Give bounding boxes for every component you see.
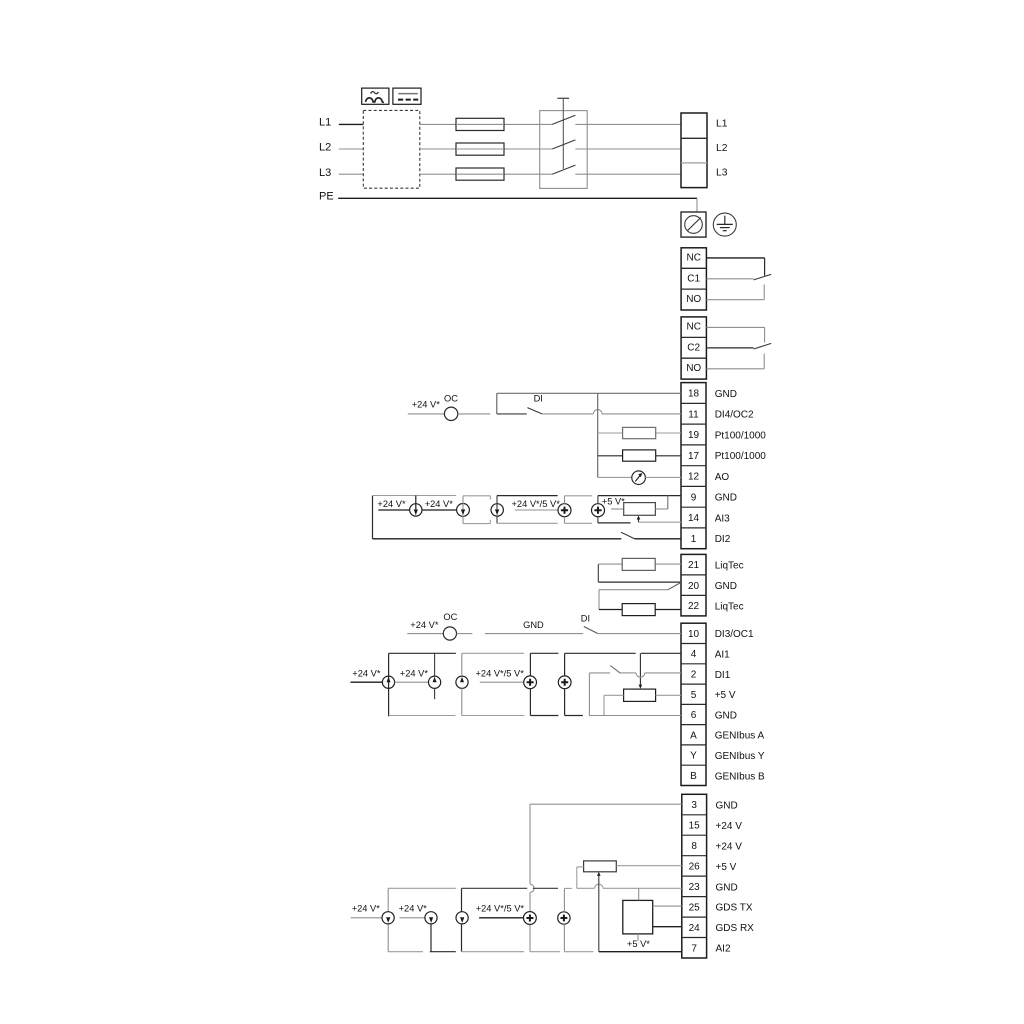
svg-text:+24 V*: +24 V* xyxy=(410,620,439,630)
svg-text:GND: GND xyxy=(715,389,737,400)
svg-text:Pt100/1000: Pt100/1000 xyxy=(715,430,767,441)
svg-text:+24 V: +24 V xyxy=(716,821,743,832)
svg-text:+5 V: +5 V xyxy=(716,862,737,873)
svg-text:23: 23 xyxy=(689,882,701,893)
svg-text:GND: GND xyxy=(715,493,737,504)
svg-text:GENIbus A: GENIbus A xyxy=(715,731,765,742)
svg-text:+24 V*: +24 V* xyxy=(352,904,381,914)
svg-text:17: 17 xyxy=(688,451,700,462)
svg-text:GND: GND xyxy=(523,620,544,630)
svg-text:18: 18 xyxy=(688,389,700,400)
svg-text:+24 V*: +24 V* xyxy=(399,904,428,914)
svg-text:DI: DI xyxy=(534,394,543,404)
svg-text:GENIbus B: GENIbus B xyxy=(715,771,765,782)
svg-text:L3: L3 xyxy=(716,168,728,179)
svg-text:LiqTec: LiqTec xyxy=(715,602,744,613)
svg-text:21: 21 xyxy=(688,560,700,571)
svg-text:24: 24 xyxy=(689,923,701,934)
svg-text:+24 V: +24 V xyxy=(716,841,743,852)
svg-text:+24 V*/5 V*: +24 V*/5 V* xyxy=(476,904,525,914)
svg-text:+24 V*: +24 V* xyxy=(425,499,454,509)
svg-text:15: 15 xyxy=(689,821,701,832)
svg-text:GDS TX: GDS TX xyxy=(716,903,753,914)
svg-text:10: 10 xyxy=(688,629,700,640)
svg-text:+24 V*/5 V*: +24 V*/5 V* xyxy=(512,499,561,509)
svg-text:L3: L3 xyxy=(319,167,331,179)
svg-text:DI1: DI1 xyxy=(715,670,731,681)
svg-text:+5 V: +5 V xyxy=(715,690,736,701)
svg-text:22: 22 xyxy=(688,601,700,612)
svg-text:14: 14 xyxy=(688,513,700,524)
svg-text:+24 V*: +24 V* xyxy=(352,668,381,678)
svg-text:DI3/OC1: DI3/OC1 xyxy=(715,629,754,640)
svg-text:12: 12 xyxy=(688,472,700,483)
svg-text:+5 V*: +5 V* xyxy=(627,939,650,949)
svg-text:1: 1 xyxy=(691,534,697,545)
svg-text:4: 4 xyxy=(691,649,697,660)
svg-text:AI3: AI3 xyxy=(715,514,730,525)
svg-text:A: A xyxy=(690,730,697,741)
svg-text:AI2: AI2 xyxy=(716,944,731,955)
svg-text:PE: PE xyxy=(319,191,334,203)
svg-text:B: B xyxy=(690,771,697,782)
svg-text:20: 20 xyxy=(688,581,700,592)
svg-text:25: 25 xyxy=(689,902,701,913)
svg-text:NC: NC xyxy=(686,253,700,264)
svg-text:GENIbus Y: GENIbus Y xyxy=(715,751,765,762)
svg-text:2: 2 xyxy=(691,670,697,681)
svg-text:GND: GND xyxy=(716,800,738,811)
svg-text:+24 V*: +24 V* xyxy=(377,499,406,509)
svg-text:+24 V*/5 V*: +24 V*/5 V* xyxy=(476,668,525,678)
svg-text:L2: L2 xyxy=(319,142,331,154)
svg-text:3: 3 xyxy=(691,800,697,811)
svg-text:AI1: AI1 xyxy=(715,650,730,661)
svg-text:L2: L2 xyxy=(716,143,728,154)
svg-text:AO: AO xyxy=(715,472,730,483)
svg-text:DI4/OC2: DI4/OC2 xyxy=(715,410,754,421)
svg-text:DI: DI xyxy=(581,614,590,624)
svg-text:9: 9 xyxy=(691,492,697,503)
svg-text:C1: C1 xyxy=(687,273,700,284)
svg-text:11: 11 xyxy=(688,409,699,420)
svg-text:+5 V*: +5 V* xyxy=(602,497,625,507)
svg-text:19: 19 xyxy=(688,430,700,441)
svg-text:6: 6 xyxy=(691,710,697,721)
svg-text:+24 V*: +24 V* xyxy=(412,400,441,410)
svg-text:+24 V*: +24 V* xyxy=(400,668,429,678)
svg-text:L1: L1 xyxy=(319,116,331,128)
svg-text:Y: Y xyxy=(690,751,697,762)
svg-text:OC: OC xyxy=(444,394,458,404)
svg-text:L1: L1 xyxy=(716,119,728,130)
svg-text:GND: GND xyxy=(716,882,738,893)
svg-text:7: 7 xyxy=(691,943,697,954)
svg-text:8: 8 xyxy=(691,841,697,852)
svg-text:GND: GND xyxy=(715,710,737,721)
svg-text:NO: NO xyxy=(686,363,701,374)
svg-text:GND: GND xyxy=(715,581,737,592)
svg-text:C2: C2 xyxy=(687,342,700,353)
svg-text:Pt100/1000: Pt100/1000 xyxy=(715,451,767,462)
svg-text:LiqTec: LiqTec xyxy=(715,561,744,572)
svg-text:OC: OC xyxy=(443,612,457,622)
svg-text:5: 5 xyxy=(691,690,697,701)
svg-text:26: 26 xyxy=(689,862,701,873)
svg-text:GDS RX: GDS RX xyxy=(716,923,755,934)
svg-text:DI2: DI2 xyxy=(715,534,731,545)
svg-text:NC: NC xyxy=(686,322,700,333)
svg-text:NO: NO xyxy=(686,294,701,305)
